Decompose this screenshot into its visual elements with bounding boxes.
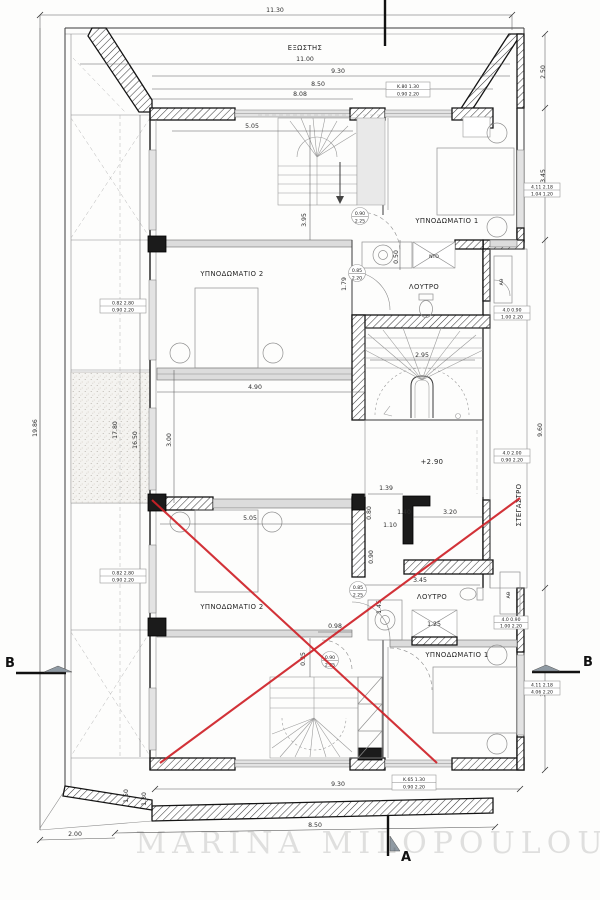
dim-label: 1.40 bbox=[397, 509, 411, 516]
bedside-table bbox=[263, 343, 283, 363]
dim-label: 8.08 bbox=[293, 91, 307, 98]
dim-label: 1.30 bbox=[141, 792, 148, 806]
dim-label: 16.50 bbox=[132, 431, 139, 449]
window-tag-row: 0.90 2.20 bbox=[397, 92, 419, 98]
bedroom1-bottom-furniture bbox=[433, 645, 517, 754]
bedroom2-bottom-furniture bbox=[170, 510, 282, 592]
dim-label: 5.05 bbox=[245, 123, 259, 130]
columns bbox=[148, 236, 365, 636]
dim-label: 2.50 bbox=[540, 65, 547, 79]
dim-label: 3.20 bbox=[443, 509, 457, 516]
stairs-lower bbox=[270, 677, 382, 758]
section-b-label: B bbox=[5, 656, 15, 671]
bathroom-top-fixtures bbox=[362, 242, 455, 318]
dim-label: 1.50 bbox=[123, 789, 130, 803]
dim-label: 9.30 bbox=[331, 68, 345, 75]
dim-label: 2.00 bbox=[68, 831, 82, 838]
dim-label: 9.60 bbox=[537, 423, 544, 437]
dim-label: 3.45 bbox=[540, 169, 547, 183]
window-tag-row: 0.82 2.80 bbox=[112, 301, 134, 307]
window-tag-row: 4.11 2.18 bbox=[531, 185, 553, 191]
shaft-label: ΑΘ bbox=[499, 278, 505, 285]
room-label-bath-bottom: ΛΟΥΤΡΟ bbox=[417, 593, 447, 601]
dim-label: 8.50 bbox=[311, 81, 325, 88]
room-label-bedroom2-bottom: ΥΠΝΟΔΩΜΑΤΙΟ 2 bbox=[199, 603, 263, 611]
stair-landing bbox=[357, 118, 385, 205]
sink bbox=[373, 245, 393, 265]
closet-label: ΝΤΟ bbox=[429, 254, 439, 260]
dim-label: 3.00 bbox=[166, 433, 173, 447]
window-tag: 4.11 2.18 1.04 1.20 bbox=[524, 183, 560, 198]
toilet-tank bbox=[419, 294, 433, 300]
window-tag-row: 1.04 1.20 bbox=[531, 192, 553, 198]
floor-plan-page: 11.30 11.00 9.30 8.50 8.08 5.05 2.50 3.4… bbox=[0, 0, 600, 900]
stair-direction-arrow bbox=[336, 196, 344, 204]
watermark: MARINA MILOPOULOU bbox=[135, 826, 600, 861]
bed bbox=[437, 148, 514, 215]
door-tag: 0.85 2.20 bbox=[349, 265, 366, 282]
window-tag-row: 0.90 2.20 bbox=[501, 458, 523, 464]
shaft-label: ΑΘ bbox=[506, 591, 512, 598]
window-tag-row: 0.90 2.20 bbox=[112, 308, 134, 314]
bedside-table bbox=[487, 645, 507, 665]
section-b-label: B bbox=[583, 655, 593, 670]
door-tag-width: 0.85 bbox=[352, 268, 362, 274]
bedside-table bbox=[170, 343, 190, 363]
window-tag-row: 0.82 2.80 bbox=[112, 571, 134, 577]
dim-label: 1.10 bbox=[383, 522, 397, 529]
dim-label: 17.80 bbox=[112, 421, 119, 439]
bedside-table bbox=[262, 512, 282, 532]
door-tag-height: 2.25 bbox=[355, 219, 365, 225]
window-tag-row: 4.06 2.20 bbox=[531, 690, 553, 696]
room-label-bedroom2-top: ΥΠΝΟΔΩΜΑΤΙΟ 2 bbox=[199, 270, 263, 278]
window-tag-row: 0.90 2.20 bbox=[112, 578, 134, 584]
door-tags: 0.90 2.25 0.85 2.20 0.85 2.25 0.90 2.25 bbox=[322, 208, 369, 669]
dim-label: 0.98 bbox=[328, 623, 342, 630]
window-tag: 4.0 2.00 0.90 2.20 bbox=[494, 449, 530, 464]
window-tag: 0.82 2.80 0.90 2.20 bbox=[100, 299, 146, 314]
bed bbox=[195, 288, 258, 368]
window-tag-row: 4.11 2.18 bbox=[531, 683, 553, 689]
dim-label: 11.00 bbox=[296, 56, 314, 63]
room-label-bedroom1-bottom: ΥΠΝΟΔΩΜΑΤΙΟ 1 bbox=[424, 651, 488, 659]
dim-label: 0.90 bbox=[368, 550, 375, 564]
window-tag-row: 4.0 0.90 bbox=[503, 308, 522, 314]
dim-label: 0.50 bbox=[393, 250, 400, 264]
room-label-bath-top: ΛΟΥΤΡΟ bbox=[409, 283, 439, 291]
window-tag-row: 4.0 0.90 bbox=[502, 617, 521, 623]
dim-label: 5.05 bbox=[243, 515, 257, 522]
window-tag: 0.82 2.80 0.90 2.20 bbox=[100, 569, 146, 584]
window-tag: Κ.80 1.30 0.90 2.20 bbox=[386, 82, 430, 98]
dim-label: 4.90 bbox=[248, 384, 262, 391]
bedside-table bbox=[487, 734, 507, 754]
room-label-balcony: ΕΞΩΣΤΗΣ bbox=[288, 44, 322, 52]
window-tag-row: Κ.65 1.30 bbox=[403, 777, 425, 783]
door-tag: 0.90 2.25 bbox=[352, 208, 369, 225]
toilet bbox=[460, 588, 476, 600]
level-label: +2.90 bbox=[421, 458, 444, 466]
window-tag-row: 1.00 2.20 bbox=[501, 315, 523, 321]
canopy-strip bbox=[490, 249, 527, 614]
door-tag-width: 0.90 bbox=[355, 211, 365, 217]
dim-label: 9.30 bbox=[331, 781, 345, 788]
window-tag-row: 0.90 2.20 bbox=[403, 785, 425, 791]
door-tag: 0.85 2.25 bbox=[350, 582, 367, 599]
dim-label: 1.39 bbox=[379, 485, 393, 492]
dim-label: 0.80 bbox=[366, 506, 373, 520]
window-tag-row: 4.0 2.00 bbox=[503, 451, 522, 457]
dim-label: 3.45 bbox=[413, 577, 427, 584]
bedside-table bbox=[487, 217, 507, 237]
room-label-canopy: ΣΤΕΓΑΣΤΡΟ bbox=[515, 484, 523, 527]
window-tag: Κ.65 1.30 0.90 2.20 bbox=[392, 775, 436, 791]
door-tag-height: 2.20 bbox=[352, 276, 362, 282]
dim-label: 1.25 bbox=[427, 621, 441, 628]
floor-plan-drawing: 11.30 11.00 9.30 8.50 8.08 5.05 2.50 3.4… bbox=[0, 0, 600, 900]
window-tag-row: Κ.80 1.30 bbox=[397, 84, 419, 90]
dim-label: 3.95 bbox=[301, 213, 308, 227]
dim-label: 2.95 bbox=[415, 352, 429, 359]
window-tag: 4.11 2.18 4.06 2.20 bbox=[524, 681, 560, 696]
bedside-table bbox=[170, 512, 190, 532]
balcony-walls bbox=[73, 28, 524, 112]
dim-label: 11.30 bbox=[266, 7, 284, 14]
room-label-bedroom1-top: ΥΠΝΟΔΩΜΑΤΙΟ 1 bbox=[414, 217, 478, 225]
l-wall-column bbox=[403, 496, 430, 544]
window-tag: 4.0 0.90 1.00 2.20 bbox=[494, 306, 530, 321]
bedroom2-top-furniture bbox=[170, 288, 283, 368]
door-tag-height: 2.25 bbox=[353, 593, 363, 599]
bed bbox=[195, 510, 258, 592]
dim-label: 19.86 bbox=[32, 419, 39, 437]
window-tag: 4.0 0.90 1.00 2.20 bbox=[494, 616, 528, 630]
toilet-tank bbox=[477, 588, 483, 600]
door-tag-width: 0.85 bbox=[353, 585, 363, 591]
dim-label: 1.79 bbox=[341, 277, 348, 291]
bed bbox=[433, 667, 517, 733]
window-tag-row: 1.00 2.20 bbox=[500, 624, 522, 630]
